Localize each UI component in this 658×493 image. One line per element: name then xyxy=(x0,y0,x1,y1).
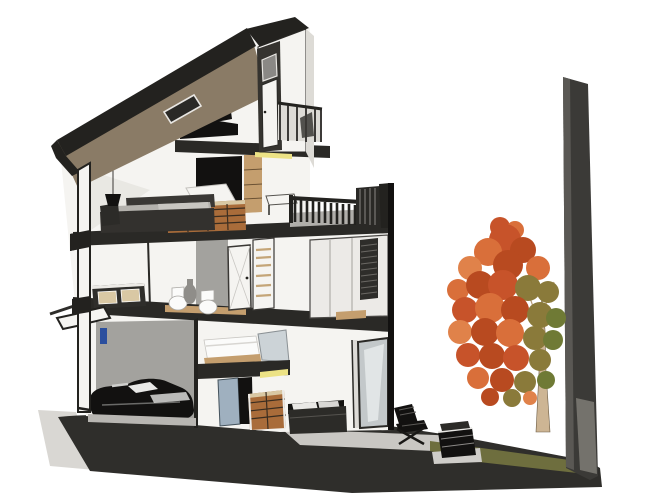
wardrobe xyxy=(253,238,274,310)
blue-wardrobe xyxy=(218,378,240,426)
toilet-2 xyxy=(199,290,217,314)
tall-cabinet xyxy=(244,154,262,213)
tower-side xyxy=(306,29,314,168)
boundary-wall xyxy=(563,77,598,480)
glass-headboard xyxy=(258,330,289,362)
patio-door xyxy=(352,338,388,428)
building-section xyxy=(50,17,394,434)
bath-door xyxy=(228,245,251,310)
storage-crates xyxy=(248,390,286,430)
balcony xyxy=(278,103,322,142)
blue-frame-upper xyxy=(100,328,107,344)
tree-canopy xyxy=(447,217,566,407)
lounge-sofa xyxy=(288,400,347,434)
stair-tower xyxy=(257,29,322,168)
dresser xyxy=(92,283,146,309)
louver-vent xyxy=(360,238,378,300)
garden-tree xyxy=(447,217,566,432)
architectural-section-render: 3D cutaway section perspective of a mode… xyxy=(0,0,658,493)
building-right-edge xyxy=(388,183,394,430)
section-svg: 3D cutaway section perspective of a mode… xyxy=(0,0,658,493)
garage-partition xyxy=(194,318,198,428)
